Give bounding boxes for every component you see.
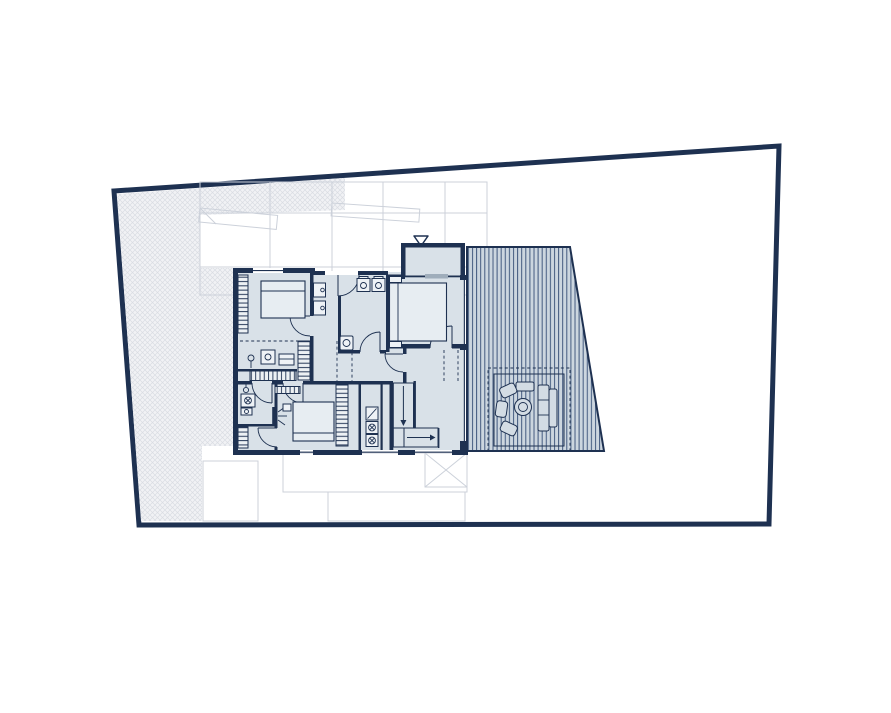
- bedroom-left: [261, 281, 305, 318]
- floor-plan-drawing: [0, 0, 891, 713]
- bed: [293, 402, 334, 441]
- utility-column: [366, 407, 378, 447]
- sink-icon: [372, 279, 385, 292]
- entry-vestibule: [403, 243, 463, 275]
- coffee-table: [515, 399, 532, 416]
- toilet-icon: [340, 336, 353, 350]
- bedroom-right: [390, 277, 447, 348]
- bed: [261, 281, 305, 318]
- sink-icon: [241, 408, 252, 415]
- upper-floor-plan: [233, 243, 468, 455]
- sink-icon: [357, 279, 370, 292]
- floor-plan-canvas: [0, 0, 891, 713]
